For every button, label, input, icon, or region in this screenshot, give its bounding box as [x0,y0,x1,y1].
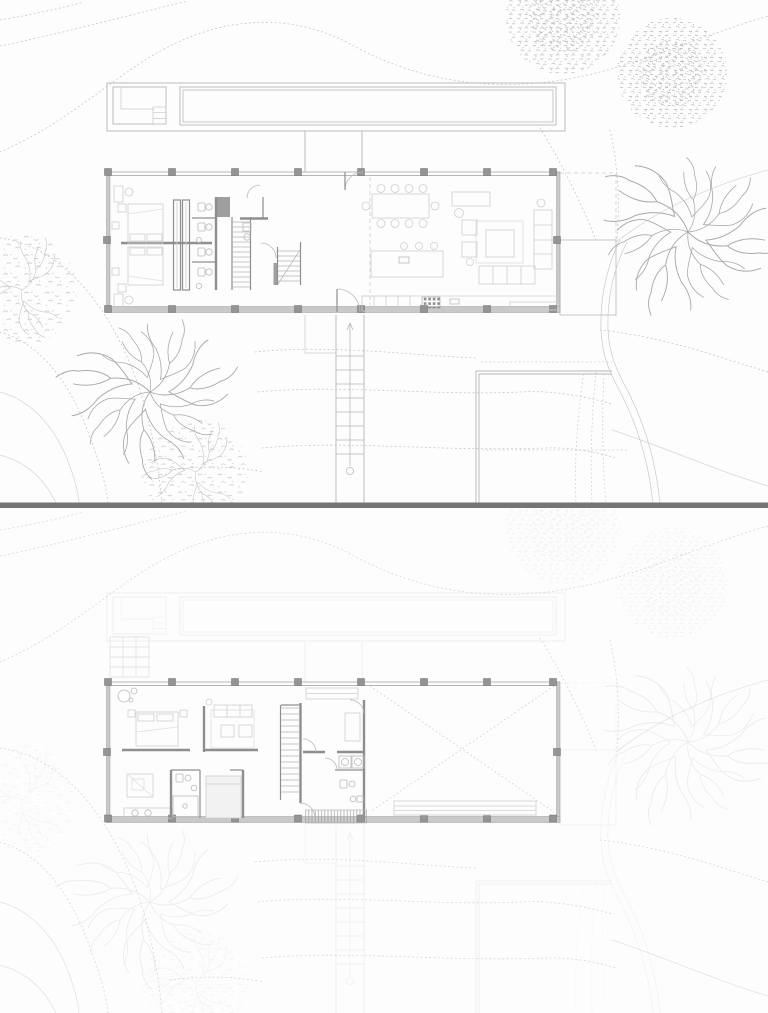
door-swing [303,739,316,752]
deck-grating [305,810,367,823]
void-x-marks [370,686,554,812]
built-in-bench [394,801,536,815]
sofa [214,705,252,717]
door-swing [350,700,364,714]
open-room [370,686,554,815]
upper-sheet [0,0,768,525]
armchair [462,220,477,235]
living-area [462,199,552,284]
main-staircase [233,222,250,287]
lower-bathroom [171,770,243,818]
plant [118,690,130,702]
ghosted-site [0,470,768,1013]
floor-lamp [537,199,545,207]
door-swing [261,243,276,258]
bed [128,247,163,285]
dining-area [362,185,490,228]
basin [191,785,197,791]
armchair [221,725,234,737]
dresser [345,713,360,741]
armchair [462,242,477,257]
island-sink [399,257,409,263]
sectional-sofa [534,210,552,269]
bedroom-furniture [112,186,212,308]
washer [339,756,351,768]
architectural-drawing [0,0,768,1013]
utility-zone [303,688,364,818]
inner-bed [206,776,241,818]
lower-floor-plan [104,679,561,824]
sitting-room [204,699,258,752]
stair-core [192,172,363,290]
rug [211,710,254,748]
dryer [352,756,364,768]
shower [173,796,198,817]
bathroom-fixtures [196,203,212,289]
coffee-table [486,230,514,257]
door-swing [325,758,337,770]
credenza [452,192,490,206]
dining-table [372,194,429,218]
floor-lamp [206,699,212,705]
lower-sheet [0,470,768,1013]
kitchen-island [371,251,443,277]
lower-bedroom [118,688,190,818]
door-swing [247,185,260,198]
cooktop [422,297,440,308]
armchair [239,725,252,737]
terrace-steps [110,637,149,677]
lower-stair [281,703,316,818]
upper-floor-plan [104,169,561,313]
drawing-sheet [0,0,768,1013]
level-divider [0,503,768,509]
sink [450,299,459,304]
